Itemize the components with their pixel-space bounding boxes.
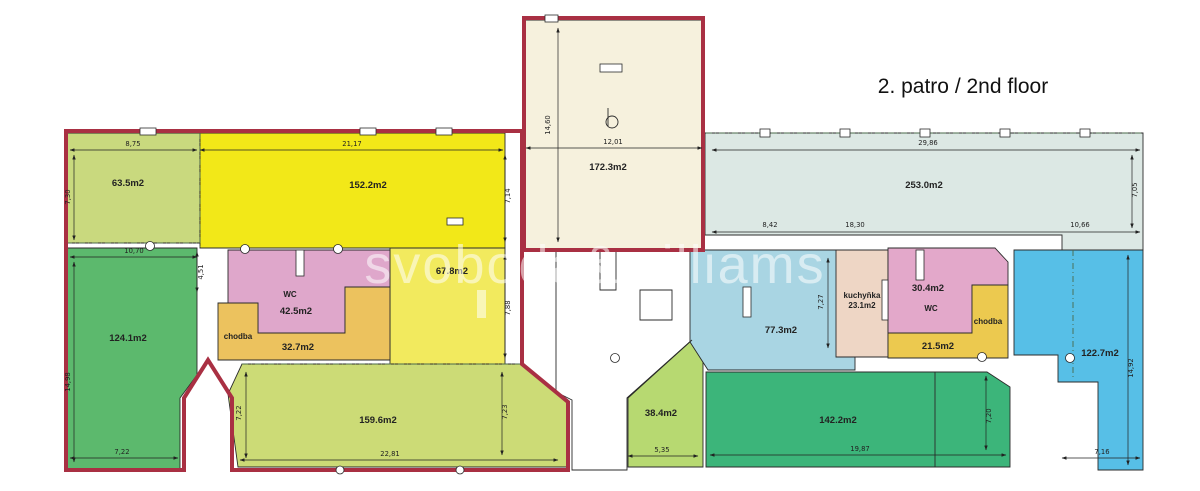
room-label-21-5: 21.5m2: [922, 341, 954, 352]
page-title: 2. patro / 2nd floor: [878, 75, 1048, 98]
dim-label: 7,14: [504, 188, 512, 203]
dim-label: 5,35: [654, 446, 669, 454]
dim-label: 8,42: [762, 221, 777, 229]
dim-label: 14,98: [64, 372, 72, 391]
room-label-63-5: 63.5m2: [112, 178, 144, 189]
dim-label: 18,30: [845, 221, 864, 229]
floor-plan-drawing: 8,75 21,17 7,30 10,70 4,51 14,98 7,22 7,…: [0, 0, 1200, 491]
dim-label: 21,17: [342, 140, 361, 148]
room-label-159-6: 159.6m2: [359, 415, 397, 426]
room-label-chodba-left: chodba: [224, 332, 253, 341]
dim-label: 7,16: [1094, 448, 1109, 456]
column-marker: [336, 466, 344, 474]
watermark-text: svoboda&williams: [364, 235, 825, 295]
room-label-122-7: 122.7m2: [1081, 348, 1119, 359]
room-label-32-7: 32.7m2: [282, 342, 314, 353]
room-label-253-0: 253.0m2: [905, 180, 943, 191]
room-label-chodba-right: chodba: [974, 317, 1003, 326]
room-122-7: [1014, 250, 1143, 470]
dim-label: 22,81: [380, 450, 399, 458]
room-label-wc-left: WC: [283, 290, 297, 299]
room-label-77-3: 77.3m2: [765, 325, 797, 336]
watermark-mark: [477, 290, 486, 318]
floor-plan-page: 8,75 21,17 7,30 10,70 4,51 14,98 7,22 7,…: [0, 0, 1200, 491]
column-marker: [611, 354, 620, 363]
room-label-kuchynka: kuchyňka: [844, 291, 881, 300]
dim-label: 7,20: [985, 408, 993, 423]
column-marker: [334, 245, 343, 254]
column-marker: [456, 466, 464, 474]
dim-label: 7,22: [235, 405, 243, 420]
room-label-23-1: 23.1m2: [848, 301, 876, 310]
column-marker: [146, 242, 155, 251]
room-124-1: [66, 248, 197, 470]
dim-label: 12,01: [603, 138, 622, 146]
dim-label: 10,70: [124, 247, 143, 255]
dim-label: 7,27: [817, 294, 825, 309]
room-label-38-4: 38.4m2: [645, 408, 677, 419]
room-label-42-5: 42.5m2: [280, 306, 312, 317]
room-label-152-2: 152.2m2: [349, 180, 387, 191]
room-label-172-3: 172.3m2: [589, 162, 627, 173]
room-label-30-4: 30.4m2: [912, 283, 944, 294]
dim-label: 7,30: [64, 189, 72, 204]
dim-label: 14,92: [1127, 358, 1135, 377]
dim-label: 14,60: [544, 115, 552, 134]
dim-label: 7,23: [501, 404, 509, 419]
dim-label: 8,75: [125, 140, 140, 148]
room-label-142-2: 142.2m2: [819, 415, 857, 426]
dim-label: 29,86: [918, 139, 937, 147]
column-marker: [1066, 354, 1075, 363]
dim-label: 19,87: [850, 445, 869, 453]
column-marker: [978, 353, 987, 362]
room-253-0: [705, 133, 1143, 250]
dim-label: 7,05: [1131, 182, 1139, 197]
room-label-124-1: 124.1m2: [109, 333, 147, 344]
dim-label: 7,88: [504, 300, 512, 315]
dim-label: 4,51: [197, 264, 205, 279]
dim-label: 7,22: [114, 448, 129, 456]
column-marker: [241, 245, 250, 254]
dim-label: 10,66: [1070, 221, 1089, 229]
room-label-wc-right: WC: [924, 304, 938, 313]
